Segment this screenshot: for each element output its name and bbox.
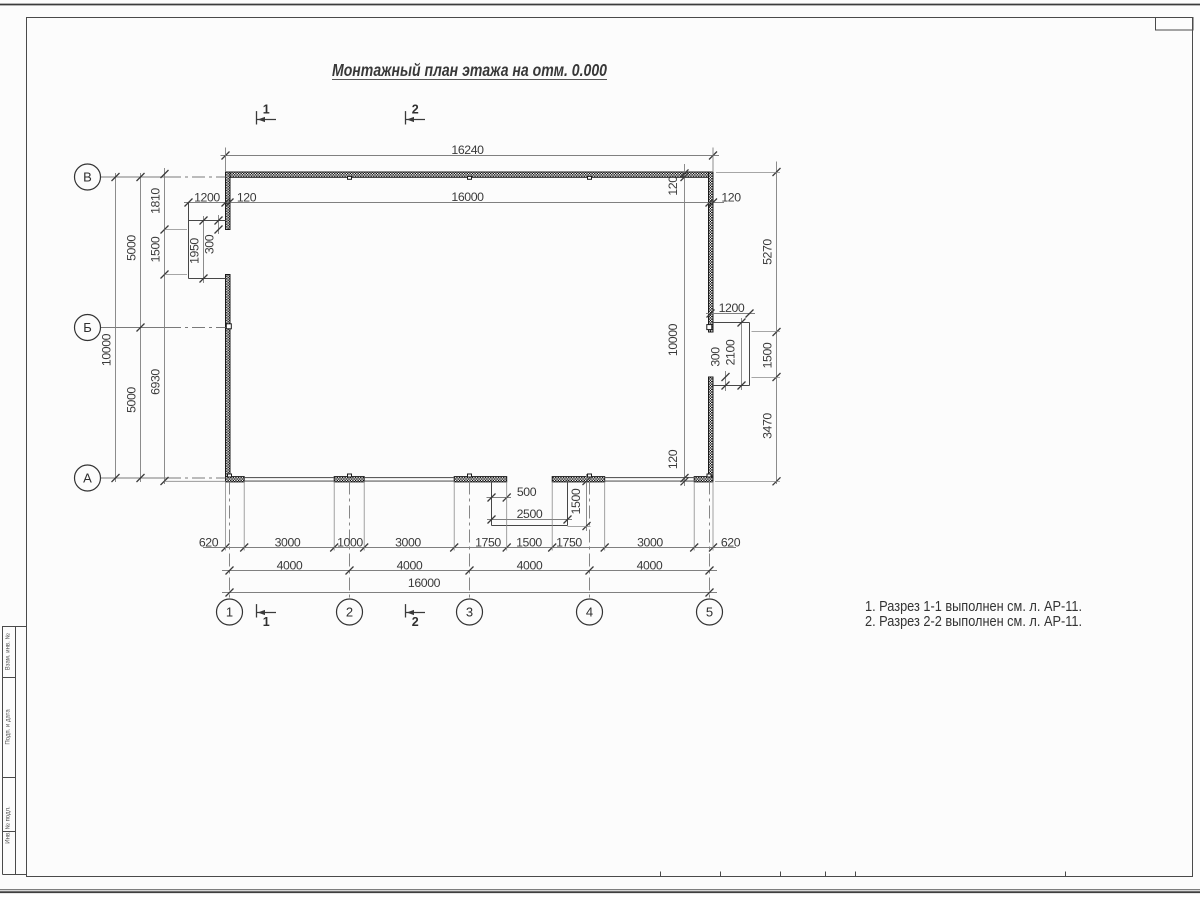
svg-text:500: 500: [517, 485, 537, 499]
svg-text:1: 1: [263, 103, 270, 117]
svg-text:1000: 1000: [337, 535, 363, 549]
svg-text:16240: 16240: [451, 143, 484, 157]
svg-text:5000: 5000: [124, 387, 138, 413]
svg-text:1: 1: [263, 615, 270, 629]
svg-text:3000: 3000: [395, 535, 421, 549]
svg-text:4: 4: [586, 605, 593, 620]
svg-text:10000: 10000: [100, 333, 114, 366]
svg-text:3: 3: [466, 605, 473, 620]
svg-text:120: 120: [666, 176, 680, 196]
svg-text:Б: Б: [83, 320, 92, 335]
svg-text:1500: 1500: [760, 342, 774, 368]
svg-text:1: 1: [226, 605, 233, 620]
svg-text:Монтажный план этажа на отм. 0: Монтажный план этажа на отм. 0.000: [332, 60, 607, 80]
svg-text:300: 300: [202, 234, 216, 254]
svg-text:16000: 16000: [451, 190, 484, 204]
svg-text:5000: 5000: [124, 235, 138, 261]
svg-text:2. Разрез 2-2 выполнен см. л.: 2. Разрез 2-2 выполнен см. л. АР-11.: [865, 614, 1082, 630]
svg-text:3470: 3470: [760, 413, 774, 439]
svg-text:620: 620: [721, 535, 741, 549]
svg-text:В: В: [83, 170, 92, 185]
svg-text:4000: 4000: [397, 558, 423, 572]
svg-text:620: 620: [199, 535, 219, 549]
svg-text:Инв. № подл.: Инв. № подл.: [5, 806, 12, 844]
svg-text:4000: 4000: [277, 558, 303, 572]
svg-text:120: 120: [666, 449, 680, 469]
svg-text:1750: 1750: [475, 535, 501, 549]
svg-text:16000: 16000: [408, 576, 441, 590]
svg-text:5270: 5270: [760, 239, 774, 265]
svg-text:1200: 1200: [719, 301, 745, 315]
svg-text:А: А: [83, 471, 92, 486]
svg-text:2: 2: [412, 615, 419, 629]
svg-text:4000: 4000: [637, 558, 663, 572]
svg-text:10000: 10000: [666, 323, 680, 356]
svg-text:300: 300: [709, 347, 723, 367]
svg-text:120: 120: [237, 190, 257, 204]
svg-text:1500: 1500: [516, 535, 542, 549]
svg-text:2: 2: [346, 605, 353, 620]
svg-text:2: 2: [412, 103, 419, 117]
svg-text:Взам. инв. №: Взам. инв. №: [5, 633, 12, 670]
svg-text:1200: 1200: [194, 190, 220, 204]
svg-text:3000: 3000: [637, 535, 663, 549]
svg-text:4000: 4000: [517, 558, 543, 572]
svg-text:1810: 1810: [148, 188, 162, 214]
svg-text:5: 5: [706, 605, 713, 620]
svg-text:2100: 2100: [723, 339, 737, 365]
svg-text:1950: 1950: [187, 238, 201, 264]
svg-text:1500: 1500: [569, 488, 583, 514]
svg-text:1500: 1500: [148, 236, 162, 262]
svg-text:Подп. и дата: Подп. и дата: [6, 709, 12, 745]
svg-text:120: 120: [721, 190, 741, 204]
svg-text:1750: 1750: [556, 535, 582, 549]
svg-text:2500: 2500: [517, 507, 543, 521]
svg-text:3000: 3000: [275, 535, 301, 549]
svg-text:6930: 6930: [148, 369, 162, 395]
svg-text:1. Разрез 1-1 выполнен см. л.: 1. Разрез 1-1 выполнен см. л. АР-11.: [865, 599, 1082, 615]
